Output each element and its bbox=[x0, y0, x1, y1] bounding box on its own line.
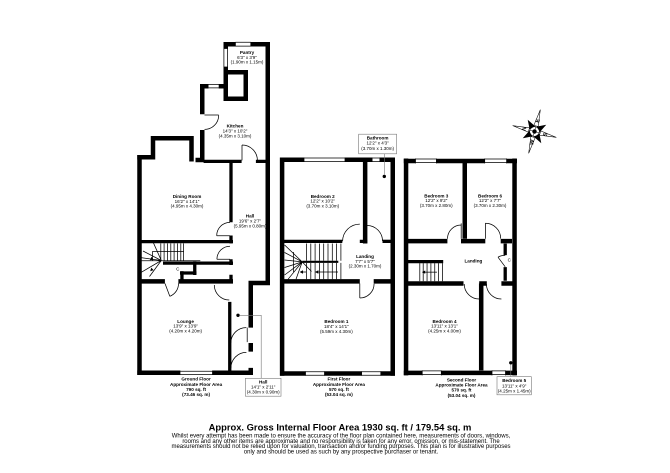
svg-text:(3.70m x 1.30m): (3.70m x 1.30m) bbox=[361, 146, 394, 151]
svg-text:(4.35m x 3.10m): (4.35m x 3.10m) bbox=[219, 133, 252, 138]
svg-text:(5.59m x 4.30m): (5.59m x 4.30m) bbox=[320, 329, 353, 334]
svg-text:(4.25m x 1.45m): (4.25m x 1.45m) bbox=[498, 389, 531, 394]
svg-text:(3.70m x 2.30m): (3.70m x 2.30m) bbox=[474, 203, 507, 208]
svg-text:(4.95m x 4.30m): (4.95m x 4.30m) bbox=[171, 204, 204, 209]
svg-text:(3.70m x 3.10m): (3.70m x 3.10m) bbox=[306, 204, 339, 209]
svg-text:(4.25m x 4.00m): (4.25m x 4.00m) bbox=[428, 329, 461, 334]
svg-text:(53.04 sq. m): (53.04 sq. m) bbox=[325, 392, 353, 397]
svg-text:(53.04 sq. m): (53.04 sq. m) bbox=[448, 393, 476, 398]
svg-text:(5.95m x 0.80m): (5.95m x 0.80m) bbox=[234, 224, 267, 229]
svg-text:(2.30m x 1.70m): (2.30m x 1.70m) bbox=[349, 264, 382, 269]
svg-text:(4.20m x 4.20m): (4.20m x 4.20m) bbox=[169, 329, 202, 334]
svg-text:Approx. Gross Internal Floor A: Approx. Gross Internal Floor Area 1930 s… bbox=[209, 422, 472, 433]
svg-text:(1.90m x 1.15m): (1.90m x 1.15m) bbox=[231, 60, 264, 65]
svg-text:(4.30m x 0.90m): (4.30m x 0.90m) bbox=[247, 390, 280, 395]
svg-text:Landing: Landing bbox=[464, 258, 482, 263]
svg-text:(73.46 sq. m): (73.46 sq. m) bbox=[182, 392, 210, 397]
svg-text:only and should be used as suc: only and should be used as such by any p… bbox=[244, 450, 439, 456]
svg-text:(3.70m x 2.80m): (3.70m x 2.80m) bbox=[420, 203, 453, 208]
